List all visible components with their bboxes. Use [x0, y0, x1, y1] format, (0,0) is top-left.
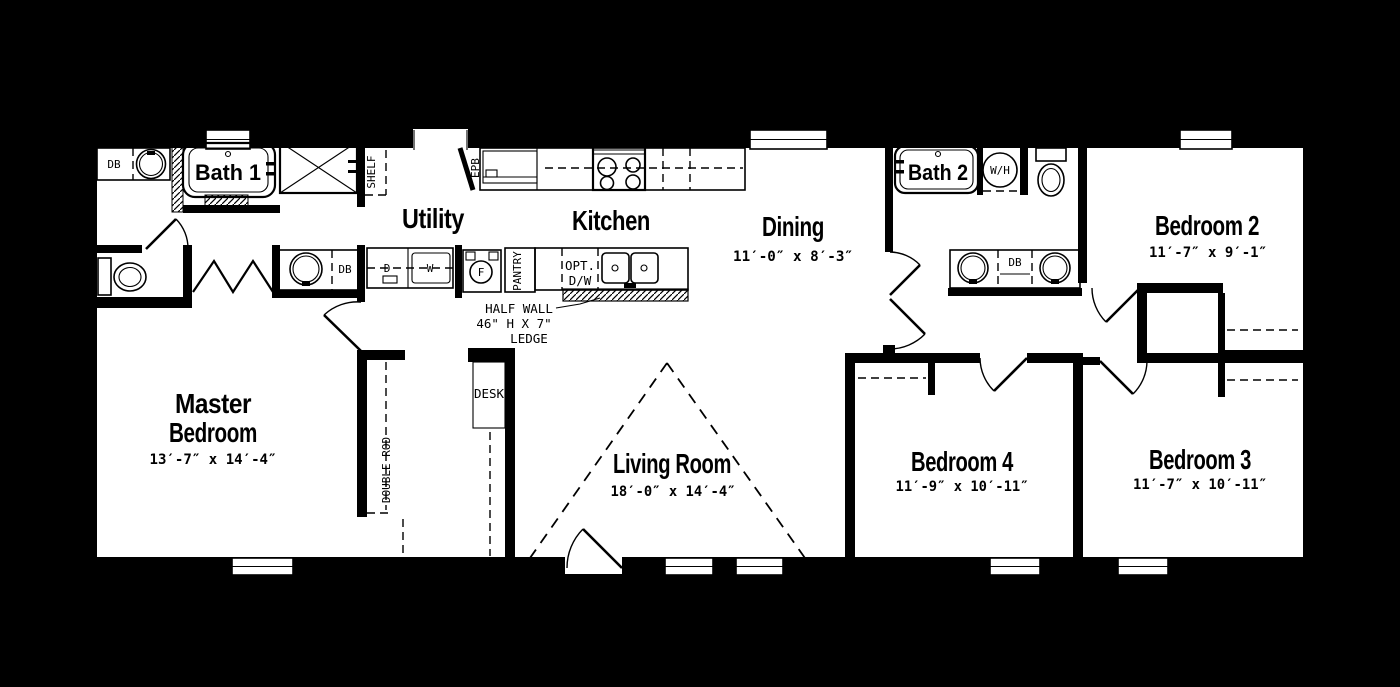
window-living-2 — [736, 558, 783, 575]
label-bath1: Bath 1 — [195, 160, 261, 185]
label-half-wall-3: LEDGE — [510, 331, 548, 346]
label-bedroom4: Bedroom 4 — [911, 446, 1014, 477]
window-bath1 — [206, 130, 250, 149]
label-half-wall-2: 46" H X 7" — [476, 316, 551, 331]
dims-bedroom3: 11′-7″ x 10′-11″ — [1133, 477, 1267, 493]
label-opt-dw-2: D/W — [569, 273, 592, 288]
label-utility: Utility — [402, 203, 465, 234]
window-living-1 — [665, 558, 713, 575]
label-fridge: F — [478, 266, 485, 279]
label-epb: EPB — [469, 158, 482, 178]
front-door-opening — [565, 554, 622, 574]
dims-dining: 11′-0″ x 8′-3″ — [733, 249, 853, 265]
label-db-bath2: DB — [1008, 256, 1022, 269]
tub-apron-hatch — [205, 195, 248, 206]
utility-back-door-opening — [413, 129, 468, 151]
window-bedroom2 — [1180, 130, 1232, 149]
tile-wall-hatch — [172, 140, 183, 212]
label-shelf: SHELF — [365, 155, 378, 188]
window-master — [232, 558, 293, 575]
dims-bedroom2: 11′-7″ x 9′-1″ — [1149, 245, 1267, 261]
label-double-rod: DOUBLE ROD — [380, 437, 393, 503]
window-bedroom3 — [1118, 558, 1168, 575]
floor-plan-svg: Master Bedroom 13′-7″ x 14′-4″ Living Ro… — [0, 0, 1400, 687]
label-half-wall-1: HALF WALL — [485, 301, 553, 316]
label-opt-dw-1: OPT. — [565, 258, 595, 273]
label-master-line2: Bedroom — [169, 417, 257, 448]
dims-living-room: 18′-0″ x 14′-4″ — [611, 484, 736, 500]
label-desk: DESK — [474, 386, 505, 401]
window-bedroom4 — [990, 558, 1040, 575]
label-master-line1: Master — [175, 388, 252, 419]
label-water-heater: W/H — [990, 164, 1010, 177]
label-dryer: D — [384, 262, 391, 275]
label-bedroom2: Bedroom 2 — [1155, 210, 1259, 241]
floor-area — [85, 133, 1315, 572]
label-pantry: PANTRY — [511, 251, 524, 291]
floor-plan-screenshot: Master Bedroom 13′-7″ x 14′-4″ Living Ro… — [0, 0, 1400, 687]
half-wall-hatch — [563, 289, 688, 301]
label-db-bath1: DB — [107, 158, 121, 171]
label-bath2: Bath 2 — [908, 160, 968, 185]
label-db-master: DB — [338, 263, 352, 276]
dims-bedroom4: 11′-9″ x 10′-11″ — [896, 479, 1029, 495]
dims-master: 13′-7″ x 14′-4″ — [150, 452, 277, 468]
label-kitchen: Kitchen — [572, 205, 650, 236]
label-dining: Dining — [762, 211, 824, 242]
window-dining — [750, 130, 827, 149]
label-bedroom3: Bedroom 3 — [1149, 444, 1251, 475]
label-living-room: Living Room — [613, 448, 731, 479]
label-washer: W — [427, 262, 434, 275]
